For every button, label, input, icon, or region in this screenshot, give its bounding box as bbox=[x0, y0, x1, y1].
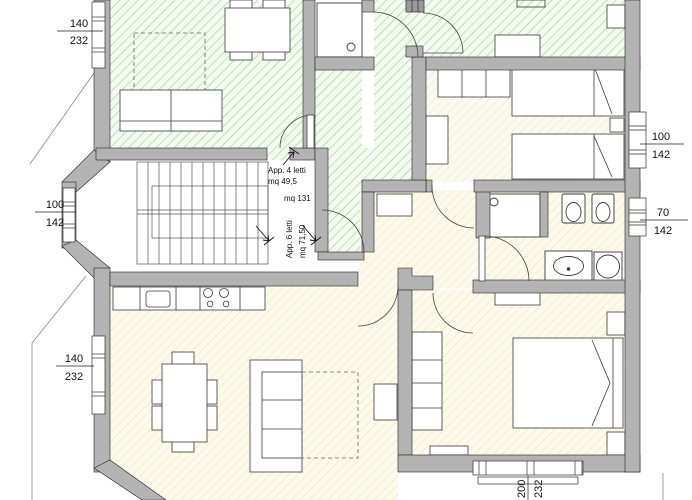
wall-shower-east-top bbox=[362, 0, 374, 12]
shower-drain bbox=[347, 43, 355, 51]
nightstand bbox=[607, 432, 625, 455]
staircase bbox=[137, 162, 268, 264]
sofa-seat bbox=[262, 372, 302, 458]
wardrobe bbox=[412, 332, 442, 430]
nightstand bbox=[607, 312, 625, 335]
nightstand bbox=[607, 5, 625, 28]
dining-table bbox=[225, 8, 290, 52]
shower-room-fixtures bbox=[317, 3, 362, 57]
wall-shower-south bbox=[315, 57, 374, 70]
wall-stair-east bbox=[315, 148, 328, 252]
door-leaf bbox=[479, 236, 485, 281]
corridor-top-floor bbox=[328, 148, 412, 180]
door-leaf-entrance4 bbox=[318, 252, 364, 260]
wall-bath-north-b bbox=[474, 180, 640, 192]
door-leaf bbox=[307, 115, 314, 148]
wardrobe bbox=[438, 68, 510, 97]
dining-table bbox=[162, 364, 207, 442]
bidet-bowl bbox=[566, 203, 581, 222]
wall-bedroom1-north bbox=[426, 57, 640, 70]
wall-bath-west bbox=[476, 190, 490, 238]
dim-value: 232 bbox=[70, 35, 88, 47]
apt6-label: App. 6 letti bbox=[285, 220, 294, 258]
wall-hall-west bbox=[362, 192, 374, 252]
kitchen-counter bbox=[113, 287, 265, 310]
dim-window-bath-right: 70 142 bbox=[640, 207, 688, 237]
dim-window-bedroom1-right: 100 142 bbox=[640, 131, 684, 161]
nightstand bbox=[610, 118, 624, 132]
dim-value: 142 bbox=[652, 149, 670, 161]
window-living-left bbox=[92, 336, 105, 414]
dim-value: 140 bbox=[70, 18, 88, 30]
dim-window-living-left: 140 232 bbox=[56, 353, 94, 383]
floorplan-drawing: 140 232 100 142 140 232 100 142 70 142 2… bbox=[0, 0, 692, 500]
dim-value: 142 bbox=[46, 217, 64, 229]
total-area: mq 131 bbox=[284, 194, 311, 203]
dim-value: 100 bbox=[46, 199, 64, 211]
stair-outline bbox=[137, 162, 268, 264]
dim-value: 232 bbox=[65, 371, 83, 383]
apartment-annotations: App. 4 letti mq 49,5 mq 131 App. 6 letti… bbox=[256, 147, 321, 258]
apt6-arrow-left bbox=[256, 226, 274, 245]
dim-value: 140 bbox=[65, 353, 83, 365]
kitchen-sink bbox=[146, 291, 170, 307]
stove-burner bbox=[223, 301, 229, 307]
corridor-leg-floor bbox=[328, 180, 362, 260]
wall-bedroom2-west bbox=[398, 290, 412, 455]
shower-drain bbox=[490, 198, 498, 206]
sink-faucet bbox=[567, 268, 570, 271]
shower-corridor-floor bbox=[315, 70, 362, 148]
dim-value: 232 bbox=[533, 480, 545, 498]
stove-burner bbox=[220, 289, 229, 298]
dresser bbox=[495, 35, 540, 57]
kitchen-furniture bbox=[113, 287, 265, 310]
wall-bedroom2-north bbox=[473, 280, 640, 293]
wall-bedroom1-west bbox=[412, 57, 426, 180]
bench bbox=[430, 446, 468, 455]
dim-value: 200 bbox=[516, 480, 528, 498]
stove-burner bbox=[207, 301, 213, 307]
stove-burner bbox=[204, 289, 213, 298]
stair-well bbox=[152, 186, 268, 238]
side-desk bbox=[374, 384, 397, 420]
wall-bath-north-a bbox=[426, 180, 432, 192]
wall-door-stub bbox=[406, 46, 423, 57]
toilet-bowl bbox=[596, 203, 610, 222]
sink-basin bbox=[554, 257, 584, 276]
single-bed bbox=[512, 134, 624, 179]
single-bed bbox=[512, 64, 624, 116]
dim-value: 100 bbox=[652, 131, 670, 143]
dim-value: 70 bbox=[657, 207, 669, 219]
wall-stair-north-a bbox=[96, 148, 267, 160]
desk bbox=[426, 116, 448, 164]
window-stair-bay bbox=[63, 188, 75, 242]
hallway-cabinet bbox=[377, 194, 412, 216]
washing-machine-drum bbox=[597, 255, 620, 278]
wall-hall-north bbox=[362, 180, 426, 192]
radiator bbox=[406, 0, 424, 12]
double-bed bbox=[513, 338, 623, 428]
shower-tray bbox=[317, 3, 362, 57]
window-bath-right bbox=[629, 198, 646, 236]
wall-landing-south bbox=[110, 272, 358, 286]
window-top-left bbox=[92, 2, 105, 68]
apt4-area: mq 49,5 bbox=[268, 177, 297, 186]
dim-value: 142 bbox=[654, 225, 672, 237]
floorplan-page: 140 232 100 142 140 232 100 142 70 142 2… bbox=[0, 0, 692, 500]
apt4-label: App. 4 letti bbox=[268, 166, 306, 175]
wall-bath-stub bbox=[540, 192, 548, 237]
window-bedroom1-right bbox=[629, 112, 646, 168]
